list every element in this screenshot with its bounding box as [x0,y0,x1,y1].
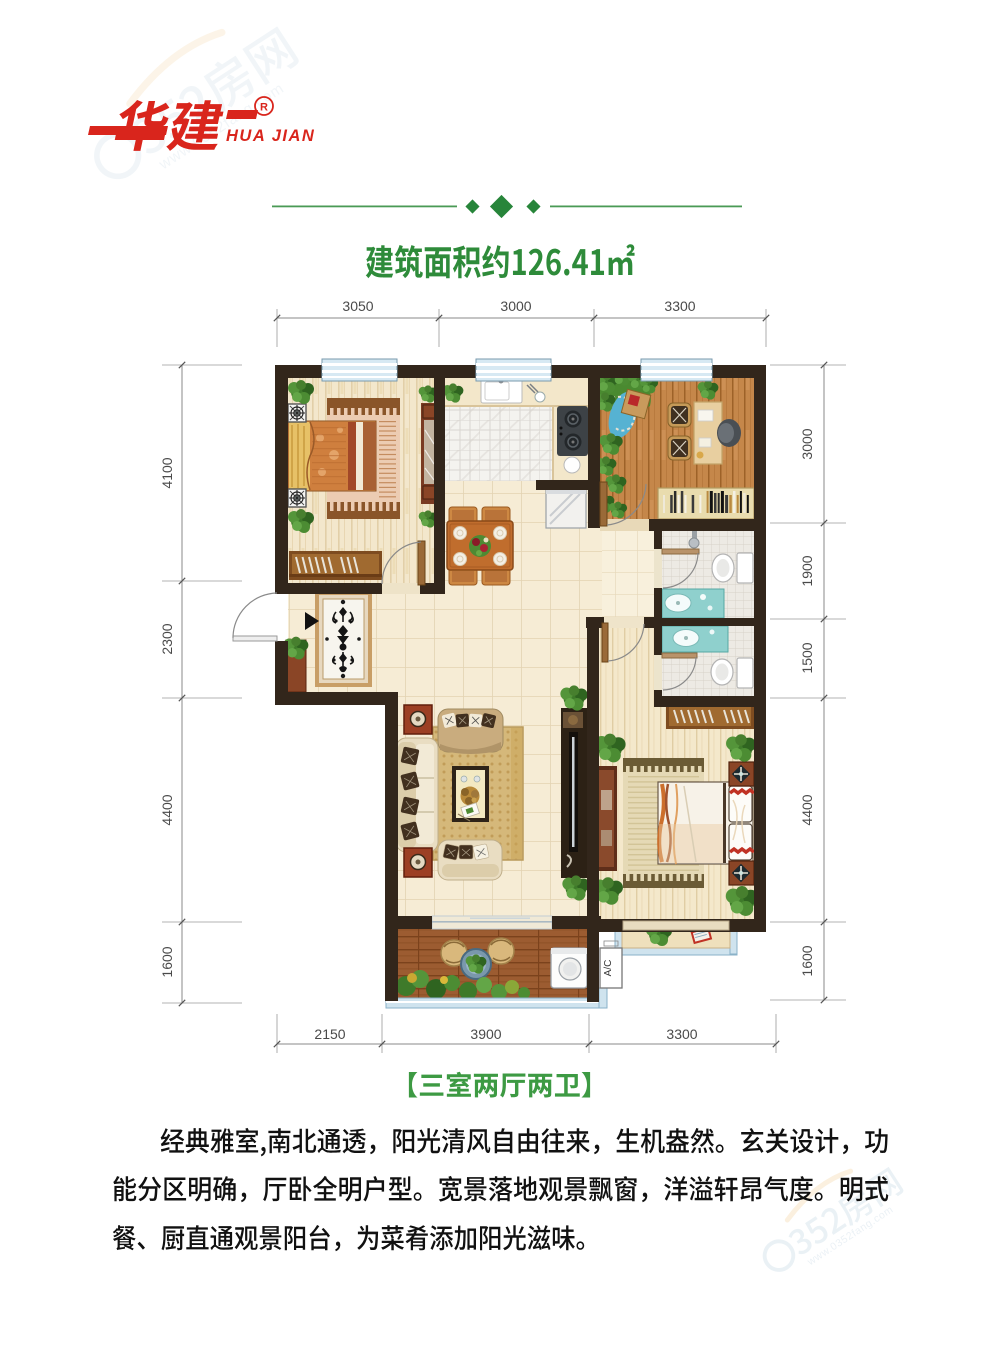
svg-text:HUA JIAN: HUA JIAN [226,127,315,145]
svg-text:4400: 4400 [799,794,815,825]
svg-text:3000: 3000 [500,298,531,314]
svg-text:1900: 1900 [799,555,815,586]
svg-text:2300: 2300 [159,623,175,654]
svg-text:4400: 4400 [159,794,175,825]
svg-text:3000: 3000 [799,428,815,459]
svg-text:1600: 1600 [159,946,175,977]
svg-text:R: R [260,102,268,114]
svg-text:2150: 2150 [314,1026,345,1042]
svg-text:A/C: A/C [603,960,614,977]
svg-text:1500: 1500 [799,642,815,673]
svg-text:1600: 1600 [799,945,815,976]
svg-text:3300: 3300 [664,298,695,314]
svg-text:3050: 3050 [342,298,373,314]
svg-text:3900: 3900 [470,1026,501,1042]
svg-text:4100: 4100 [159,457,175,488]
svg-text:3300: 3300 [666,1026,697,1042]
svg-text:www.0352fang.com: www.0352fang.com [805,1204,896,1268]
